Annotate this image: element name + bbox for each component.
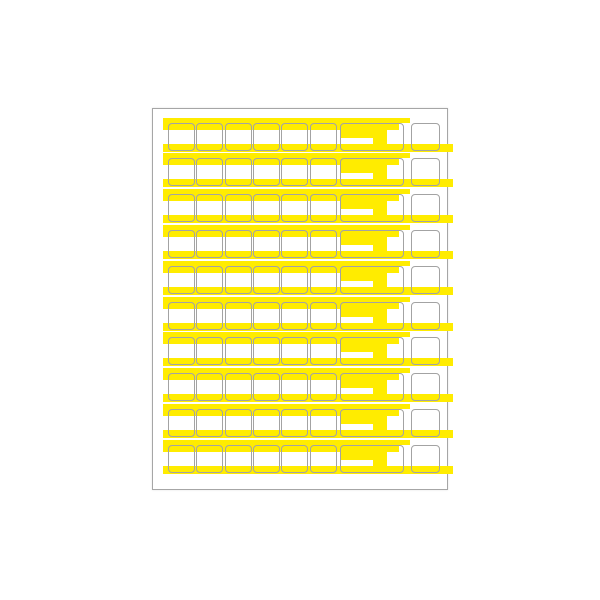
label-cell-small [225, 337, 252, 365]
label-cell-wide [340, 123, 404, 151]
label-cell-wide [340, 158, 404, 186]
label-cell-small [196, 123, 223, 151]
label-cell-small [168, 337, 195, 365]
label-cell-small [310, 302, 337, 330]
label-cell-small [196, 445, 223, 473]
label-cell-small [253, 230, 280, 258]
label-cell-small [225, 373, 252, 401]
label-cell-end [411, 194, 440, 222]
label-cell-small [225, 158, 252, 186]
label-cell-end [411, 158, 440, 186]
label-cell-small [253, 302, 280, 330]
label-cell-small [196, 337, 223, 365]
label-cell-small [253, 337, 280, 365]
label-cell-wide [340, 337, 404, 365]
label-cell-wide [340, 445, 404, 473]
image-background [0, 0, 600, 600]
label-cell-wide [340, 266, 404, 294]
label-cell-wide [340, 302, 404, 330]
label-cell-end [411, 302, 440, 330]
label-cell-small [310, 123, 337, 151]
highlight-band-tail [399, 118, 410, 123]
label-cell-wide [340, 194, 404, 222]
label-cell-small [168, 409, 195, 437]
label-cell-wide [340, 230, 404, 258]
highlight-band-tail [399, 297, 410, 302]
label-cell-small [253, 445, 280, 473]
label-cell-small [168, 123, 195, 151]
label-cell-end [411, 373, 440, 401]
label-sheet [152, 108, 448, 490]
label-cell-small [225, 230, 252, 258]
label-cell-small [310, 409, 337, 437]
label-cell-small [225, 194, 252, 222]
label-cell-small [281, 302, 308, 330]
label-cell-small [225, 409, 252, 437]
label-cell-small [253, 266, 280, 294]
label-cell-small [253, 158, 280, 186]
label-cell-small [168, 266, 195, 294]
label-cell-small [253, 123, 280, 151]
label-cell-wide [340, 373, 404, 401]
label-cell-small [225, 123, 252, 151]
label-cell-small [168, 445, 195, 473]
label-cell-small [225, 445, 252, 473]
label-cell-small [310, 158, 337, 186]
label-cell-small [281, 230, 308, 258]
highlight-band-tail [399, 440, 410, 445]
label-cell-small [281, 409, 308, 437]
label-cell-small [253, 409, 280, 437]
label-cell-small [281, 337, 308, 365]
label-cell-small [196, 158, 223, 186]
highlight-band-tail [399, 261, 410, 266]
label-cell-small [168, 158, 195, 186]
label-cell-small [196, 373, 223, 401]
label-cell-small [310, 445, 337, 473]
label-cell-small [253, 194, 280, 222]
label-cell-small [310, 266, 337, 294]
label-cell-small [281, 158, 308, 186]
label-cell-small [168, 302, 195, 330]
label-cell-small [225, 266, 252, 294]
label-cell-end [411, 337, 440, 365]
label-cell-small [196, 266, 223, 294]
label-cell-small [281, 266, 308, 294]
label-cell-small [310, 337, 337, 365]
label-cell-end [411, 230, 440, 258]
label-cell-end [411, 445, 440, 473]
label-cell-small [281, 123, 308, 151]
label-cell-small [310, 373, 337, 401]
label-cell-small [168, 194, 195, 222]
label-cell-small [225, 302, 252, 330]
label-cell-small [310, 194, 337, 222]
label-cell-end [411, 409, 440, 437]
label-cell-small [281, 445, 308, 473]
label-cell-small [281, 194, 308, 222]
label-cell-small [196, 409, 223, 437]
label-cell-small [281, 373, 308, 401]
label-cell-end [411, 123, 440, 151]
label-cell-small [168, 373, 195, 401]
label-cell-small [196, 194, 223, 222]
label-cell-small [196, 302, 223, 330]
label-cell-small [196, 230, 223, 258]
label-cell-end [411, 266, 440, 294]
label-cell-small [168, 230, 195, 258]
label-cell-small [310, 230, 337, 258]
label-cell-small [253, 373, 280, 401]
label-cell-wide [340, 409, 404, 437]
